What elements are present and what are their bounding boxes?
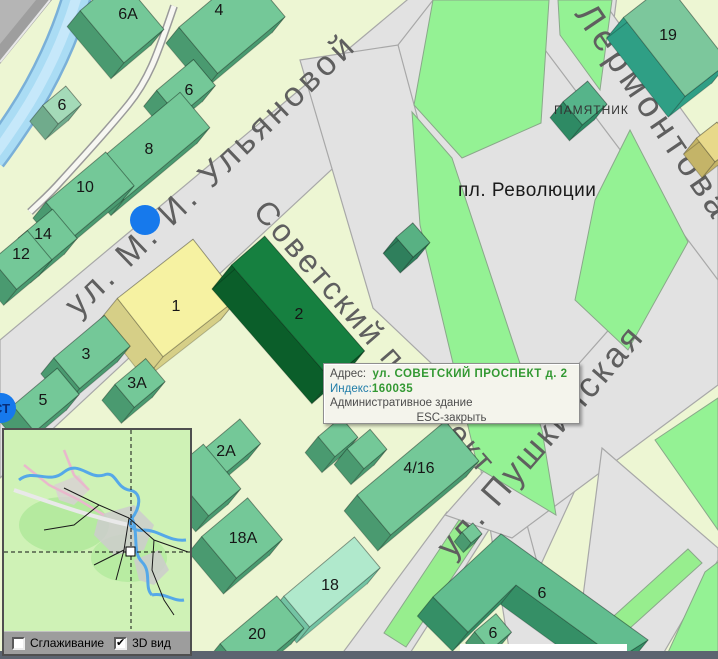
tooltip-address-value: ул. СОВЕТСКИЙ ПРОСПЕКТ д. 2	[373, 368, 568, 380]
building-label: 19	[659, 27, 677, 44]
checkbox-checked-icon[interactable]: ✔	[114, 637, 127, 650]
building-label: 10	[76, 179, 94, 196]
view3d-label: 3D вид	[132, 636, 171, 650]
building-label: 4	[215, 2, 224, 19]
tooltip-index-label: Индекс:	[330, 383, 372, 395]
building-label: 6	[538, 585, 547, 602]
square-label: пл. Революции	[458, 180, 596, 201]
minimap-canvas[interactable]	[4, 430, 190, 629]
address-tooltip: Адрес: ул. СОВЕТСКИЙ ПРОСПЕКТ д. 2 Индек…	[323, 363, 580, 424]
building-label: 2А	[216, 443, 236, 460]
tooltip-index-row: Индекс:160035	[330, 382, 573, 397]
building-label: 12	[12, 246, 30, 263]
building-label: 18А	[229, 530, 258, 547]
building-label: 5	[39, 392, 48, 409]
map-application-window: ул. М. И. Ульяновой Советский проспект Л…	[0, 0, 718, 659]
building-label: 14	[34, 226, 52, 243]
minimap[interactable]: Сглаживание ✔ 3D вид	[2, 428, 192, 656]
view3d-checkbox[interactable]: ✔ 3D вид	[114, 636, 171, 650]
building-label: 6	[489, 625, 498, 642]
monument-label: ПАМЯТНИК	[554, 103, 629, 117]
building-label: 6	[185, 82, 194, 99]
building-label: 6	[58, 97, 67, 114]
building-label: 3	[82, 346, 91, 363]
tooltip-description: Административное здание	[330, 396, 573, 411]
tooltip-close-hint: ESC-закрыть	[330, 411, 573, 426]
building-label: 20	[248, 626, 266, 643]
checkbox-unchecked-icon[interactable]	[12, 637, 25, 650]
minimap-viewport-marker[interactable]	[126, 547, 135, 556]
tooltip-address-row: Адрес: ул. СОВЕТСКИЙ ПРОСПЕКТ д. 2	[330, 367, 573, 382]
building-label: 4/16	[403, 460, 434, 477]
building-label: 18	[321, 577, 339, 594]
building-label: 1	[172, 298, 181, 315]
minimap-toolbar: Сглаживание ✔ 3D вид	[4, 631, 190, 654]
smoothing-checkbox[interactable]: Сглаживание	[12, 636, 104, 650]
building-label: 6А	[118, 6, 138, 23]
stop-marker-label: СТ	[0, 401, 10, 416]
tooltip-index-value: 160035	[372, 383, 413, 395]
smoothing-label: Сглаживание	[30, 636, 104, 650]
building-label: 2	[295, 306, 304, 323]
building-label: 8	[145, 141, 154, 158]
building-label: 3А	[127, 375, 147, 392]
checkmark-icon: ✔	[116, 639, 125, 648]
map-marker-dot[interactable]	[130, 205, 160, 235]
tooltip-address-label: Адрес:	[330, 368, 366, 380]
